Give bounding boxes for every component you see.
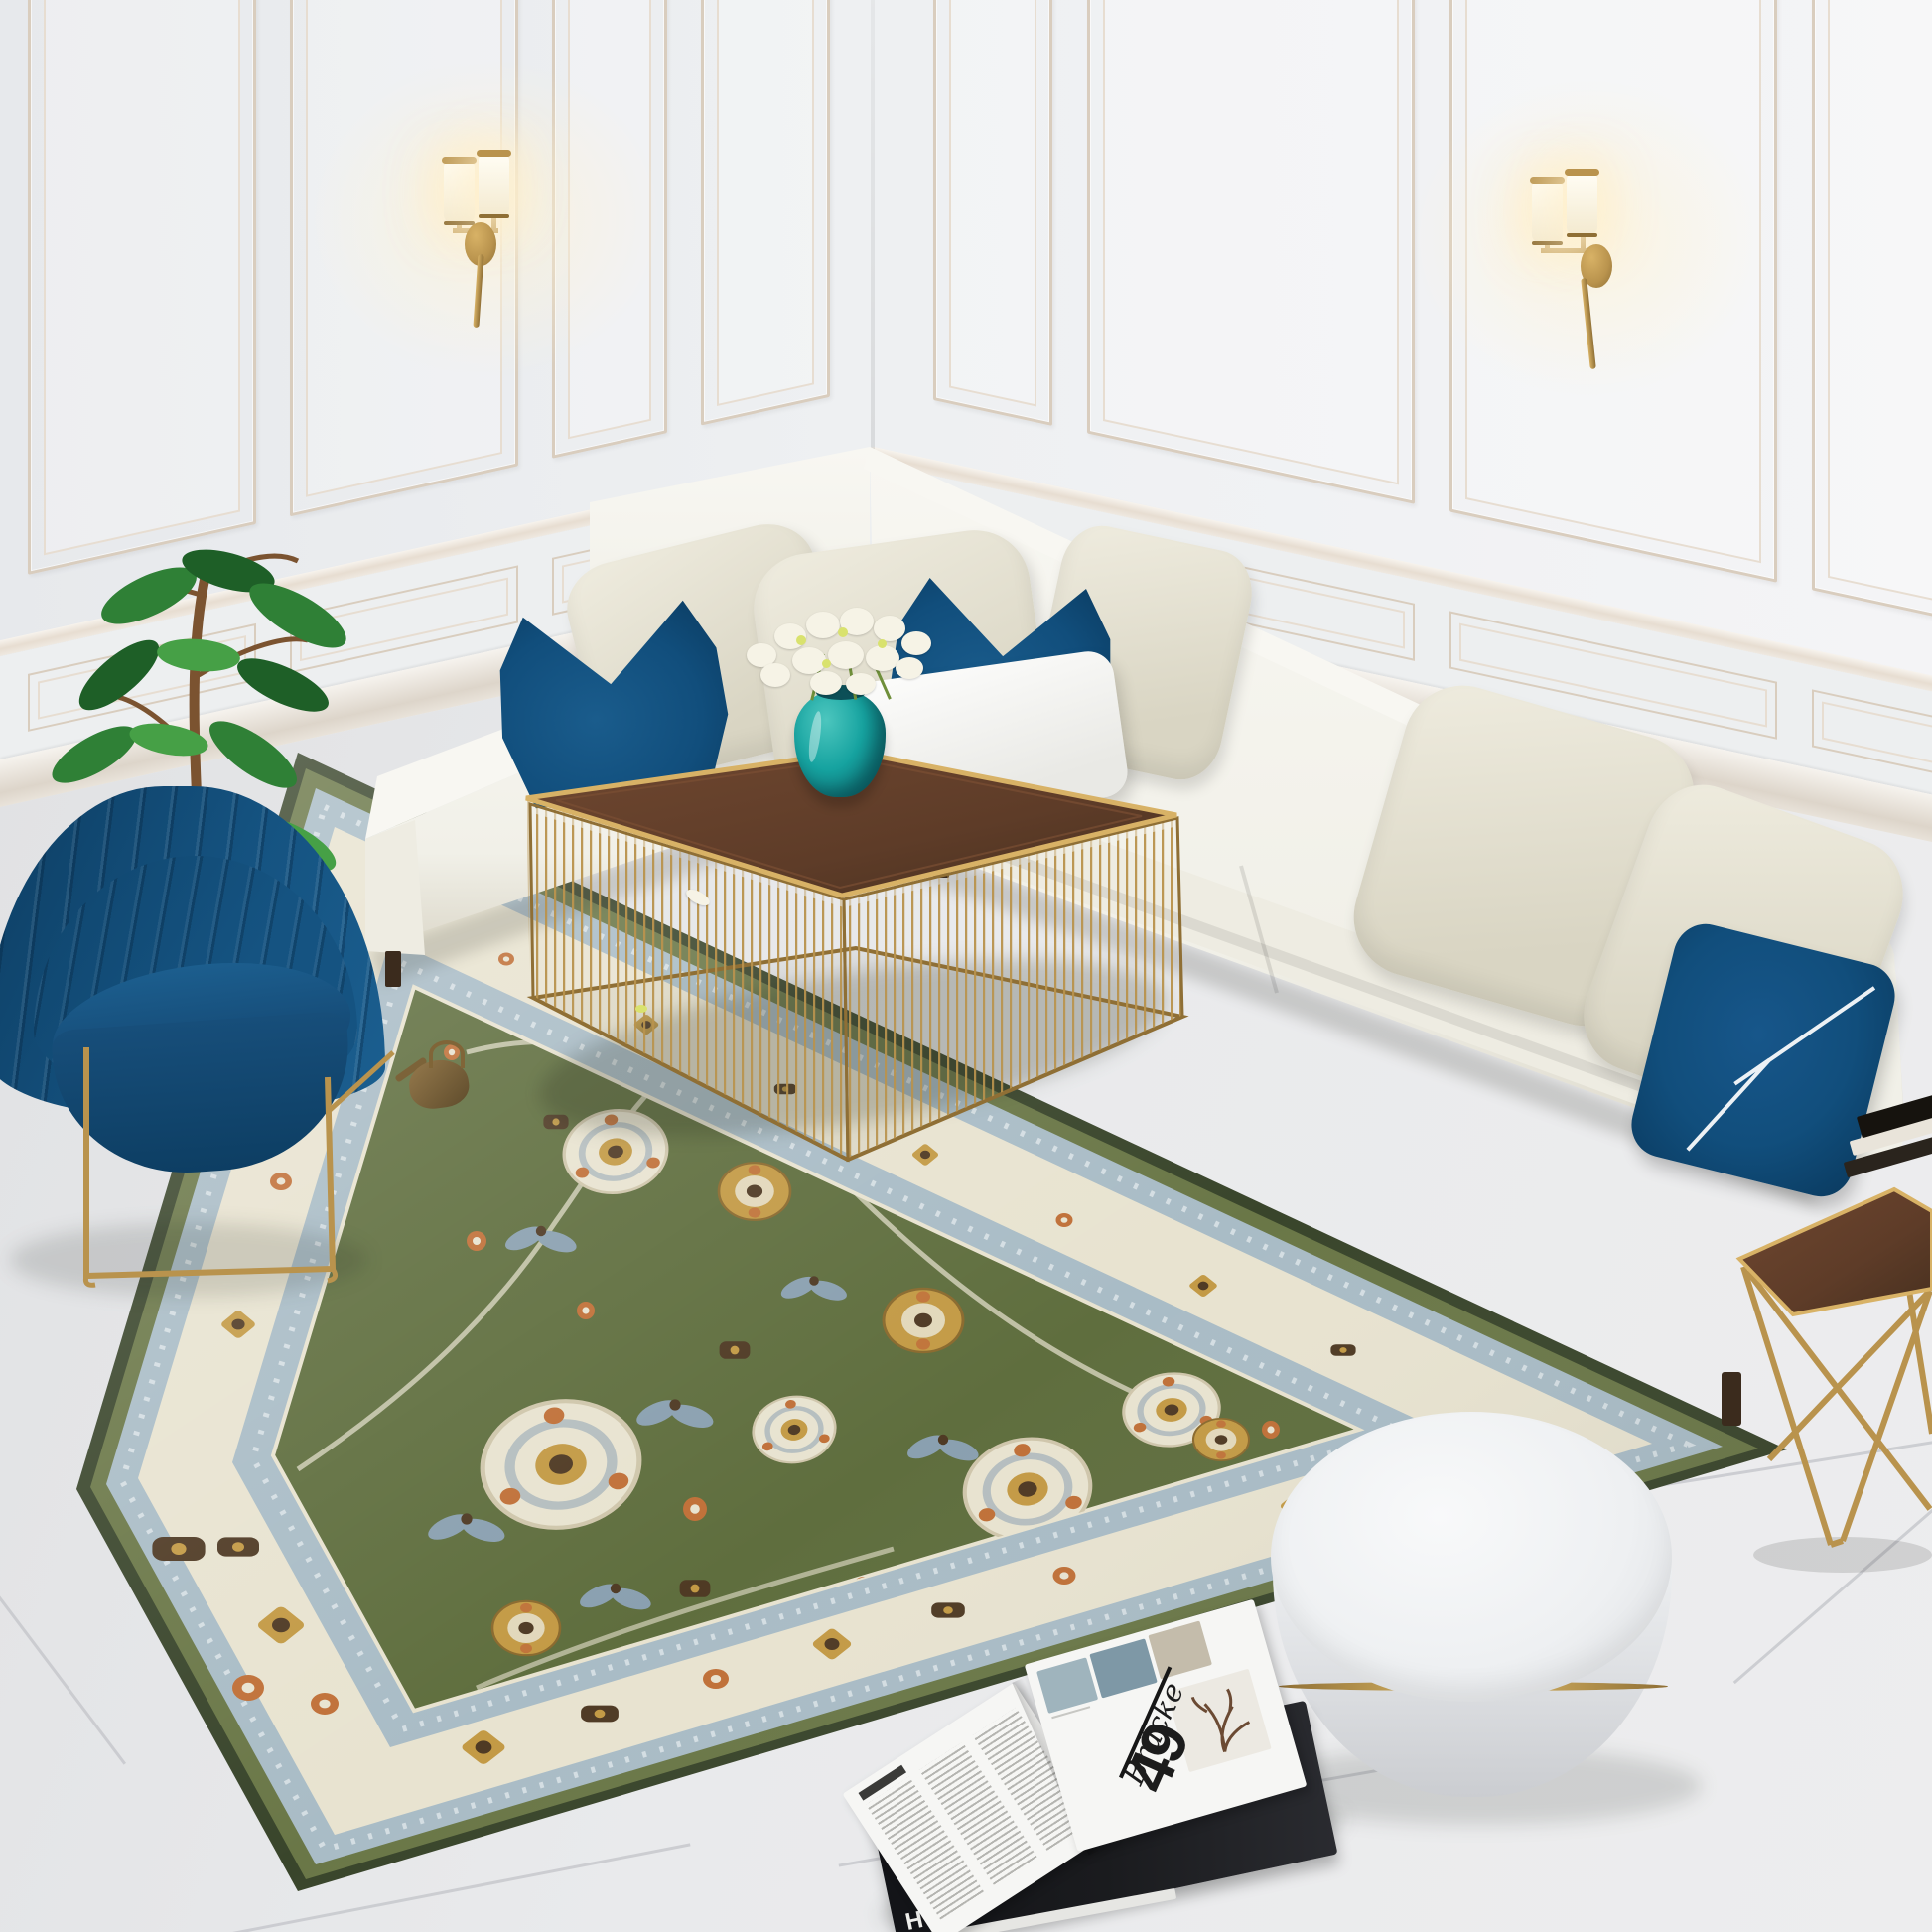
side-table <box>0 0 1932 1688</box>
living-room-scene: HAY Brücke 49 <box>0 0 1932 1932</box>
magazine-photo <box>1148 1620 1212 1679</box>
magazine-photo <box>1089 1638 1157 1698</box>
